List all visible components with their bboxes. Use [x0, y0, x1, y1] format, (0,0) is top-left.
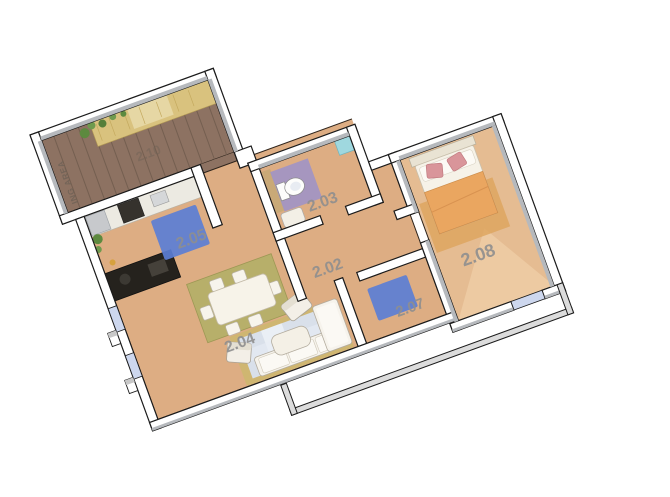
floor-plan-3d: 2.02 2.03 2.04 2.05 2.07 2.08 2.10 ING A…	[0, 0, 670, 497]
floor-plan-canvas: 2.02 2.03 2.04 2.05 2.07 2.08 2.10 ING A…	[0, 0, 670, 497]
bed-pillow-pink	[426, 163, 443, 178]
parapet-left	[281, 383, 298, 415]
